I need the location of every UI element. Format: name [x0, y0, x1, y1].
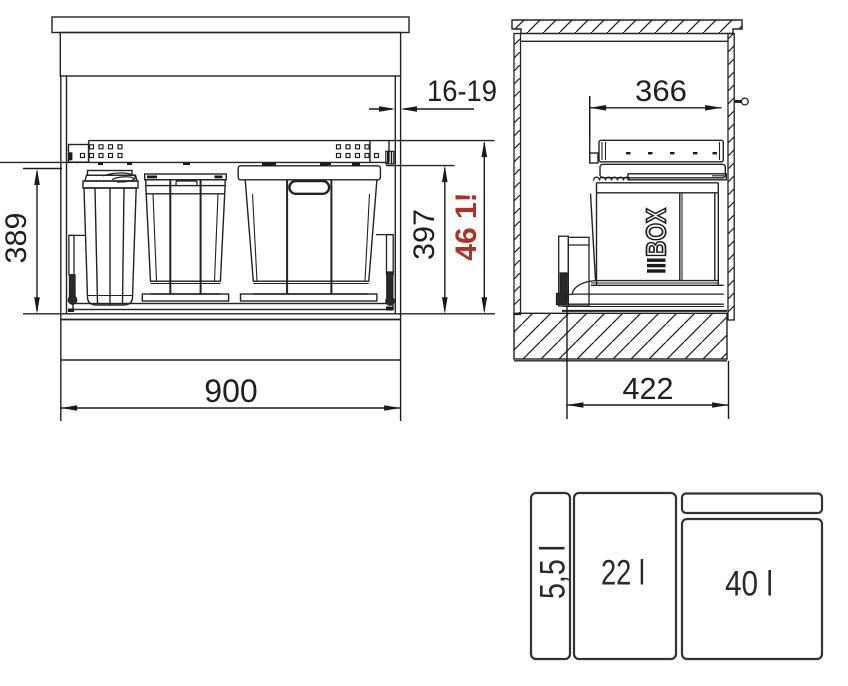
svg-text:BOX: BOX: [641, 208, 672, 257]
svg-text:40 l: 40 l: [725, 565, 773, 604]
svg-text:22 l: 22 l: [601, 554, 645, 593]
svg-text:900: 900: [204, 373, 257, 409]
svg-text:389: 389: [0, 213, 33, 264]
svg-text:422: 422: [623, 371, 674, 406]
svg-text:397: 397: [408, 209, 441, 260]
svg-text:46 1!: 46 1!: [450, 192, 483, 260]
svg-text:16-19: 16-19: [427, 75, 497, 108]
svg-text:5,5 l: 5,5 l: [534, 545, 573, 599]
svg-text:366: 366: [635, 75, 687, 108]
